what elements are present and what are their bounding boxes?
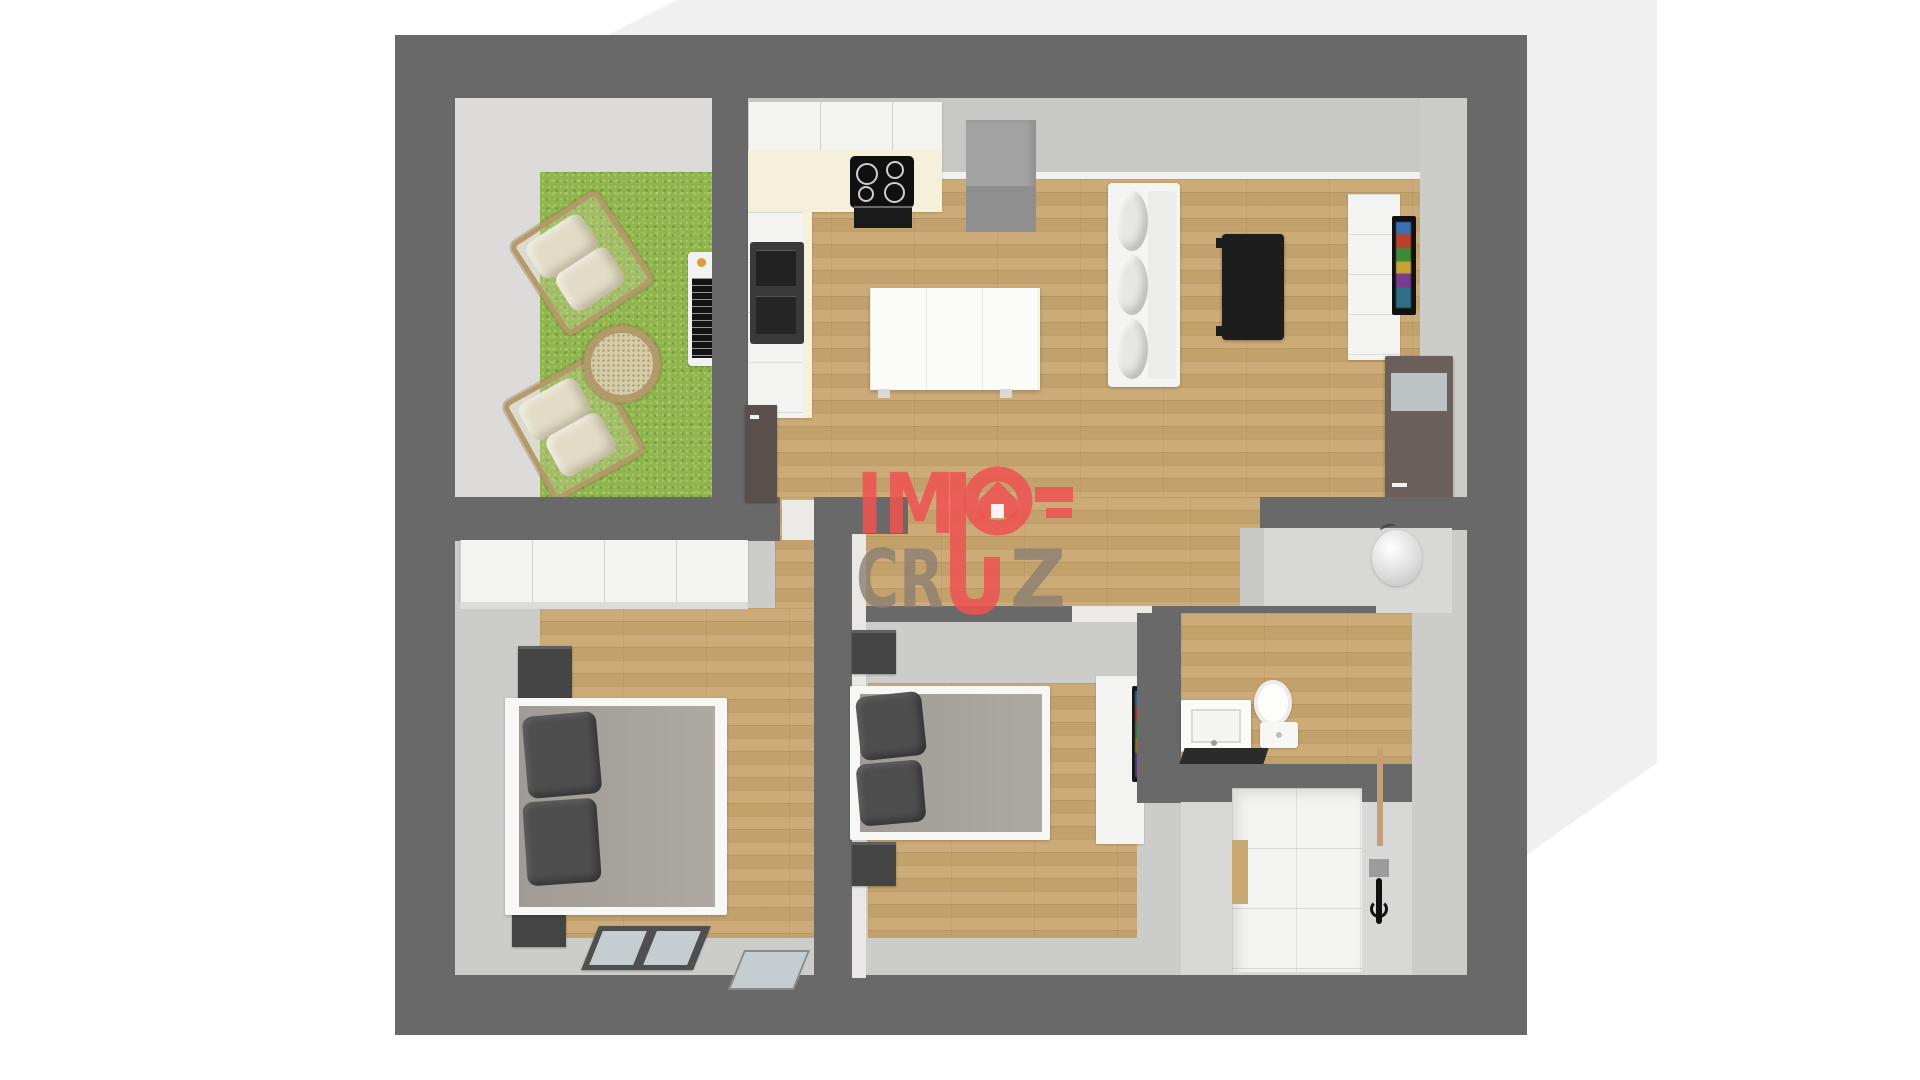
piano-foot: [1216, 326, 1224, 336]
sofa-cushion: [1116, 191, 1148, 251]
pillow: [855, 691, 927, 762]
logo-text-z: Z: [1010, 533, 1066, 620]
garden-table: [584, 326, 660, 402]
window-pane: [643, 931, 701, 965]
pillow: [522, 711, 603, 799]
tv-screen: [1392, 216, 1416, 315]
wall-pipe: [1377, 748, 1383, 846]
toilet-tank: [1260, 722, 1298, 748]
vestibule-wall-face: [1240, 528, 1264, 613]
pillow: [522, 798, 602, 887]
grill-knob: [697, 258, 706, 267]
storage-cabinets: [1232, 788, 1362, 972]
entry-vestibule-floor: [1264, 528, 1452, 613]
appliance-panel: [756, 296, 796, 334]
dining-table: [870, 288, 1040, 390]
radiator-hook: [1370, 900, 1388, 918]
sink-basin: [1191, 709, 1241, 743]
refrigerator: [966, 120, 1036, 232]
bedroom-divider-wall: [814, 534, 852, 978]
entry-door: [1385, 356, 1453, 501]
appliance-panel: [756, 250, 796, 286]
door-glass-panel: [1391, 373, 1447, 411]
sink-vanity: [1181, 700, 1251, 752]
window-pane: [589, 931, 647, 965]
grill-grate: [692, 278, 712, 358]
terrace-kitchen-wall: [712, 98, 748, 498]
toilet-bowl: [1254, 680, 1292, 726]
table-leg: [878, 389, 890, 398]
piano: [1222, 234, 1284, 340]
cabinet-wood-shelf: [1232, 840, 1248, 904]
window-1: [581, 926, 711, 970]
wardrobe-bedroom-1: [460, 540, 748, 602]
watermark-logo: IM CR Z: [850, 460, 1080, 620]
logo-dash-bar: [1035, 487, 1073, 502]
wardrobe-front-edge: [460, 602, 748, 609]
cooktop: [850, 156, 914, 208]
oven-front: [854, 206, 912, 228]
pillow: [855, 759, 926, 827]
bathroom-left-wall: [1137, 613, 1181, 803]
double-bed-2: [850, 686, 1050, 840]
refrigerator-front: [966, 186, 1036, 232]
nightstand: [518, 646, 572, 698]
sofa-cushion: [1116, 319, 1148, 379]
bath-mat: [1179, 748, 1268, 764]
door-handle: [750, 415, 759, 419]
terrace-door: [745, 405, 777, 502]
logo-text-cr: CR: [856, 533, 944, 620]
burner: [886, 161, 904, 179]
table-leg: [1000, 389, 1012, 398]
piano-foot: [1216, 238, 1224, 248]
flush-button: [1276, 732, 1282, 738]
living-bottom-wall: [1260, 497, 1467, 530]
living-room-floor: [748, 179, 1420, 497]
logo-dash-bar: [1046, 508, 1072, 518]
house-door: [991, 504, 1004, 518]
kitchen-upper-cabinets: [748, 102, 942, 150]
burner: [884, 182, 905, 203]
sofa-seat: [1148, 191, 1176, 379]
sofa: [1108, 183, 1180, 387]
terrace-bottom-wall: [395, 497, 780, 541]
countertop-edge: [803, 212, 812, 418]
faucet: [1211, 740, 1217, 746]
double-bed-1: [505, 698, 727, 915]
burner: [858, 186, 874, 202]
bedroom-1-doorway: [782, 500, 814, 540]
nightstand: [852, 842, 896, 886]
pendant-lamp: [1372, 530, 1422, 586]
nightstand: [852, 630, 896, 674]
tv-picture: [1396, 222, 1411, 308]
floor-plan-render: IM CR Z: [0, 0, 1920, 1080]
built-in-appliance: [750, 242, 804, 344]
sofa-cushion: [1116, 255, 1148, 315]
burner: [856, 163, 878, 185]
radiator-mount: [1366, 856, 1392, 880]
door-handle: [1392, 483, 1407, 487]
